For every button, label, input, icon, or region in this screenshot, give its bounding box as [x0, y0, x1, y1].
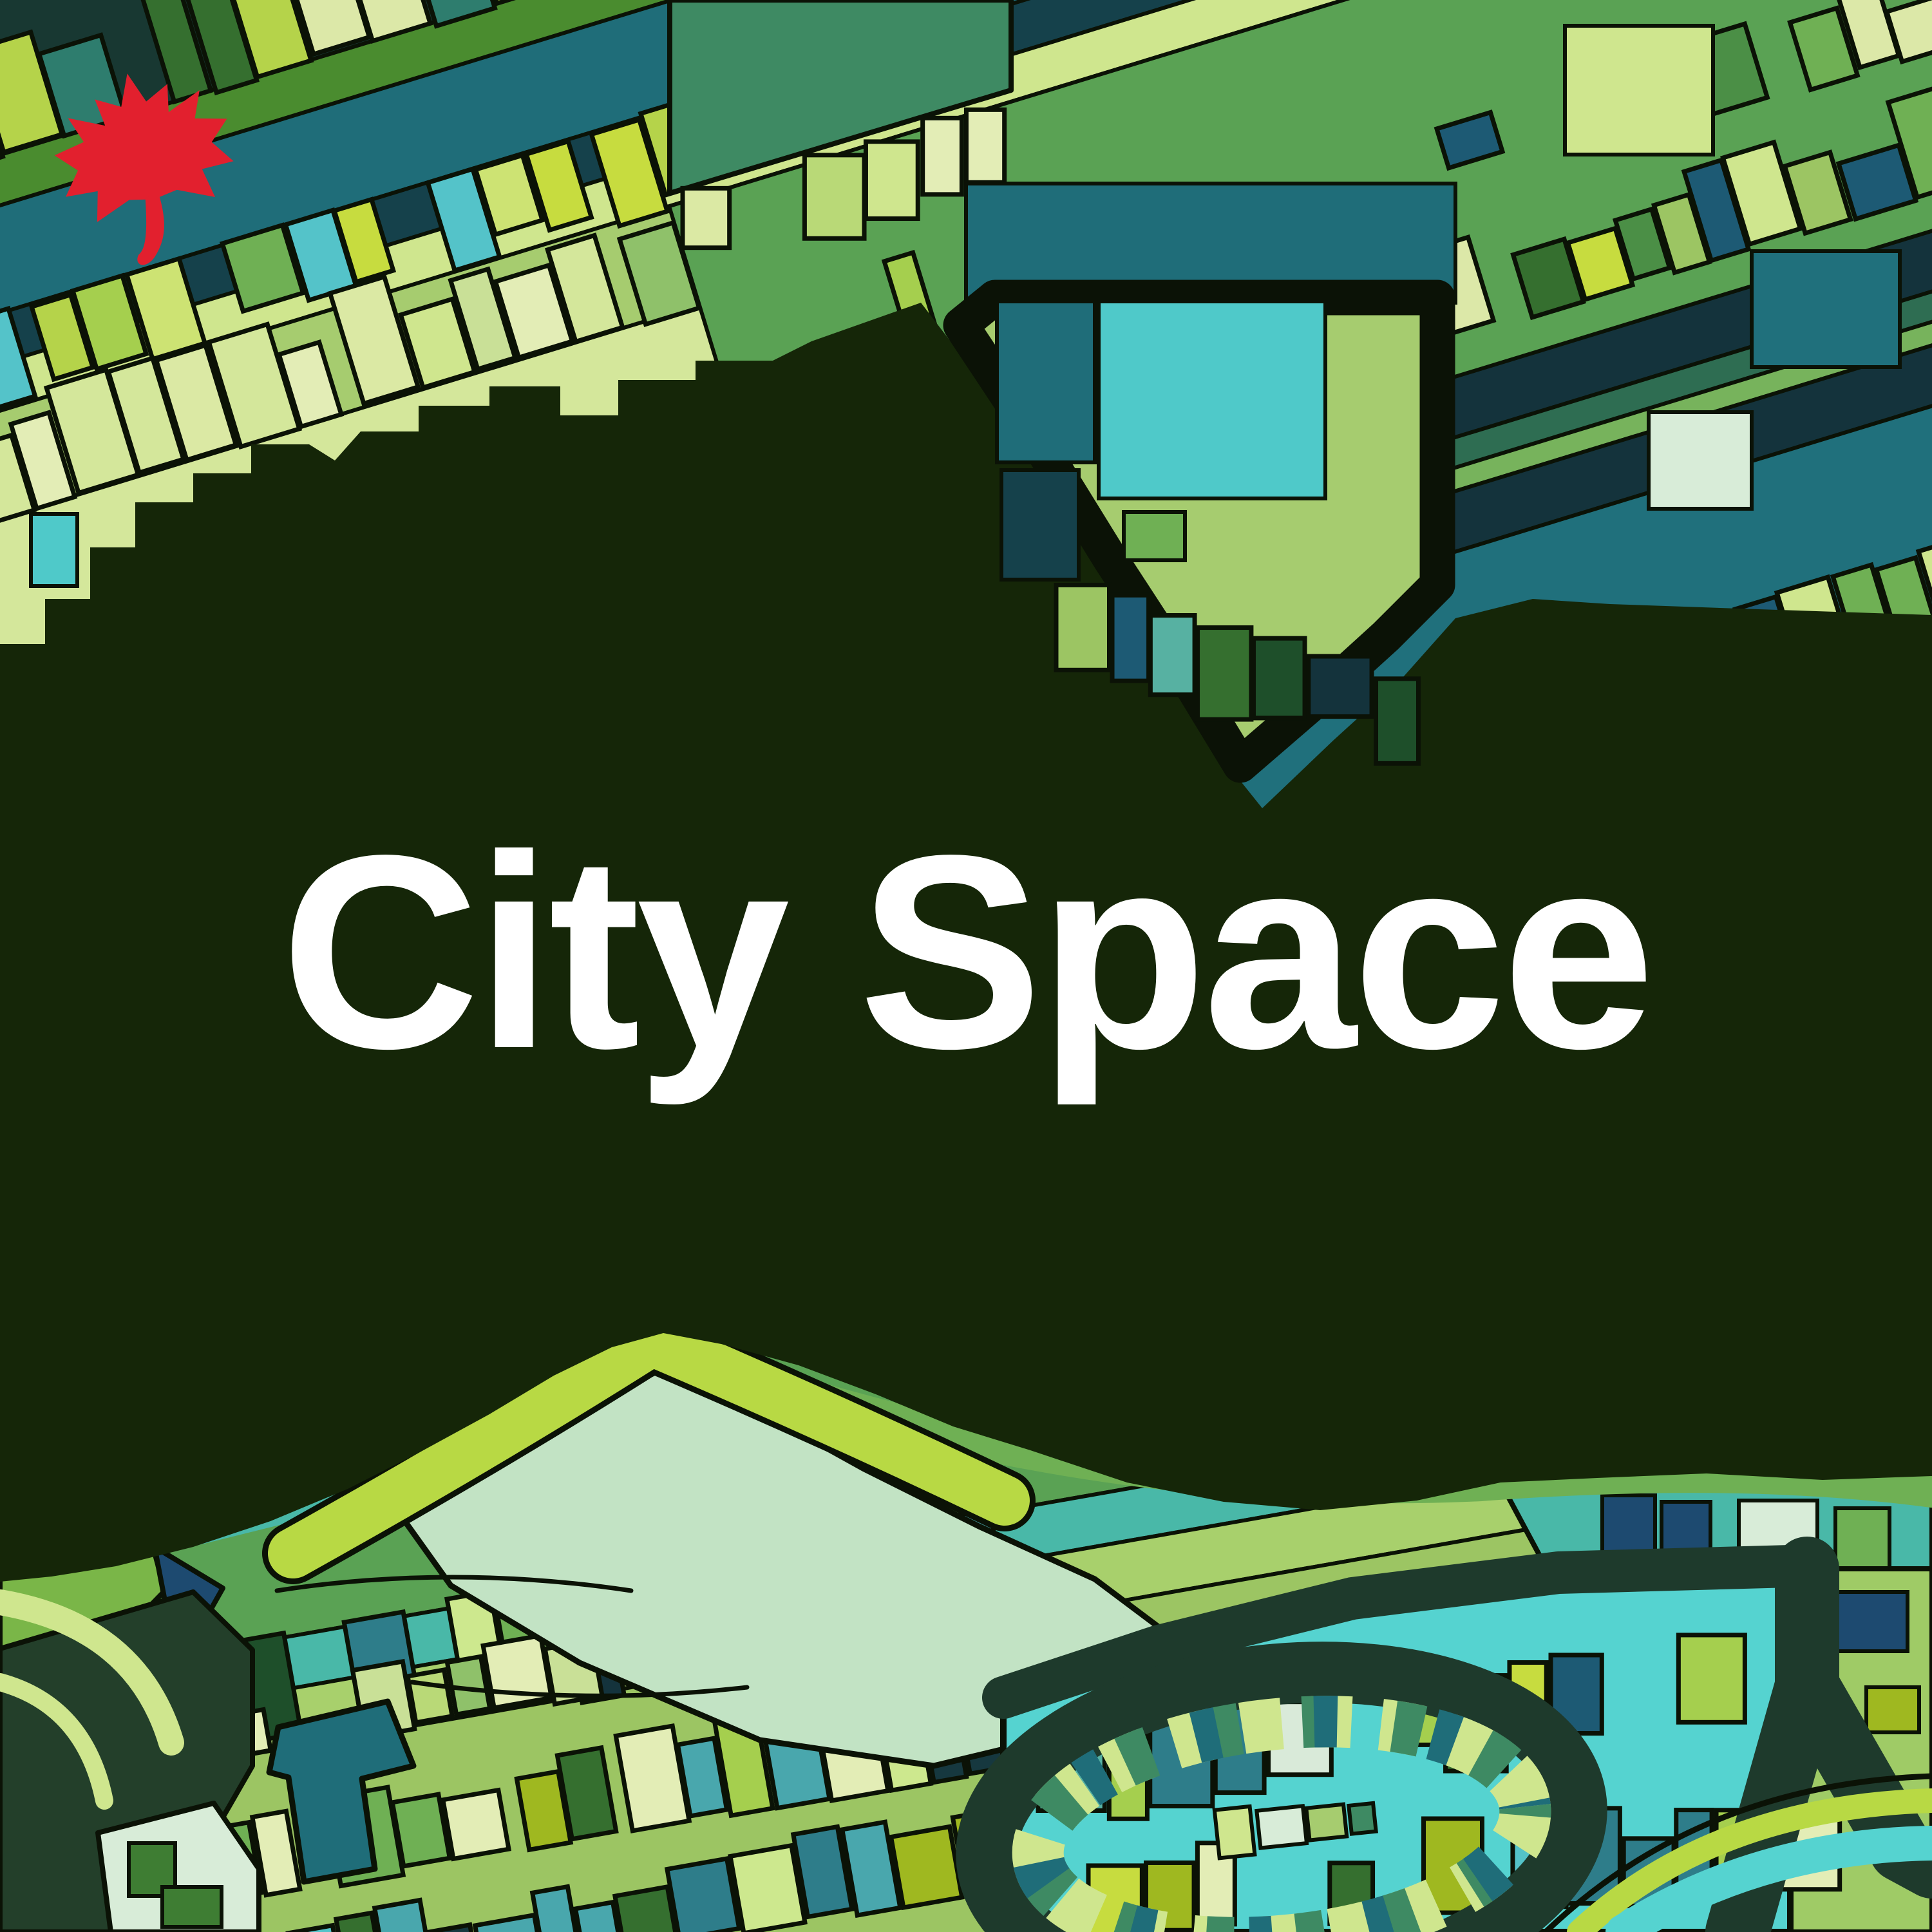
building-block — [443, 1790, 509, 1859]
building-block — [667, 1859, 739, 1932]
map-block — [997, 301, 1095, 462]
city-map-illustration: City Space — [0, 0, 1932, 1932]
building-block — [615, 1887, 677, 1932]
building-block — [1678, 1635, 1745, 1722]
map-block — [1215, 1806, 1255, 1858]
building-block — [1309, 656, 1372, 717]
podcast-title: City Space — [281, 798, 1651, 1108]
building-block — [891, 1826, 962, 1908]
building-block — [1376, 679, 1419, 763]
map-block — [162, 1887, 222, 1927]
building-block — [392, 1794, 450, 1866]
map-block — [1752, 251, 1900, 367]
map-block — [1306, 1804, 1347, 1841]
podcast-cover: City Space — [0, 0, 1932, 1932]
building-block — [923, 118, 962, 194]
building-block — [1253, 638, 1305, 718]
map-block — [1565, 26, 1713, 155]
building-block — [966, 109, 1004, 182]
map-block — [31, 514, 77, 586]
building-block — [483, 1636, 551, 1708]
map-block — [1349, 1803, 1376, 1834]
map-block — [1001, 470, 1079, 580]
map-block — [1099, 301, 1325, 498]
map-block — [1649, 412, 1752, 509]
building-block — [408, 1670, 452, 1723]
building-block — [1198, 628, 1251, 720]
map-block — [1256, 1806, 1307, 1848]
building-block — [683, 188, 730, 247]
map-block — [1835, 1508, 1889, 1570]
map-block — [1835, 1592, 1908, 1651]
building-block — [804, 155, 864, 238]
building-block — [730, 1846, 805, 1932]
map-block — [1866, 1687, 1919, 1732]
building-block — [1150, 616, 1195, 695]
building-block — [1056, 585, 1110, 670]
building-block — [1112, 595, 1149, 681]
map-block — [1124, 512, 1185, 560]
building-block — [866, 142, 918, 219]
